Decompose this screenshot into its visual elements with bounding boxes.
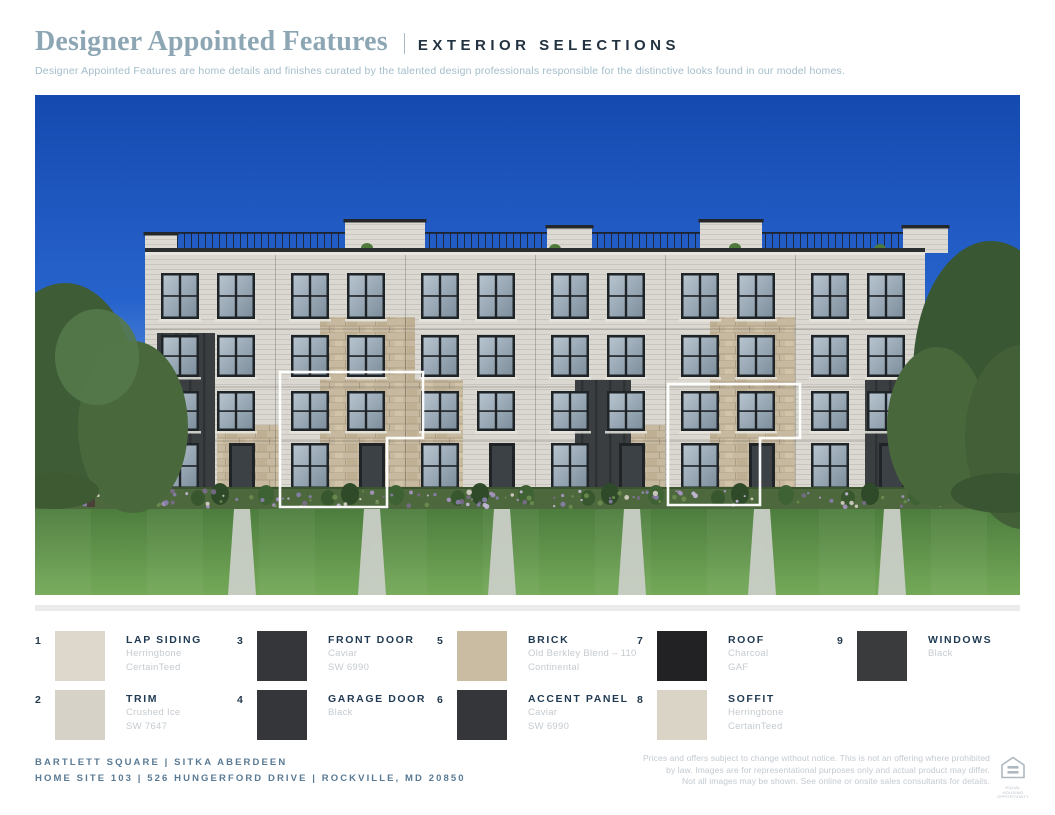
legend-detail: Caviar bbox=[528, 707, 629, 719]
legend-detail: SW 7647 bbox=[126, 721, 181, 733]
legend-detail: Old Berkley Blend – 110 bbox=[528, 648, 637, 660]
legend-column-1: 1 LAP SIDING Herringbone CertainTeed 2 T… bbox=[35, 631, 202, 749]
legend-number: 7 bbox=[637, 631, 657, 647]
soffit-swatch bbox=[657, 690, 707, 740]
legend-name: WINDOWS bbox=[928, 634, 992, 646]
legend-number: 5 bbox=[437, 631, 457, 647]
roof-swatch bbox=[657, 631, 707, 681]
legend-number: 2 bbox=[35, 690, 55, 706]
brochure-page: Designer Appointed Features EXTERIOR SEL… bbox=[0, 0, 1055, 815]
legend-name: LAP SIDING bbox=[126, 634, 202, 646]
townhome-rendering-svg bbox=[35, 95, 1020, 595]
legend-number: 8 bbox=[637, 690, 657, 706]
trim-swatch bbox=[55, 690, 105, 740]
garage-door-swatch bbox=[257, 690, 307, 740]
legend-detail: Continental bbox=[528, 662, 637, 674]
disclaimer-line: Not all images may be shown. See online … bbox=[643, 776, 990, 788]
disclaimer-line: Prices and offers subject to change with… bbox=[643, 753, 990, 765]
legend-number: 9 bbox=[837, 631, 857, 647]
legend-name: ACCENT PANEL bbox=[528, 693, 629, 705]
legend-name: SOFFIT bbox=[728, 693, 784, 705]
legend-column-5: 9 WINDOWS Black bbox=[837, 631, 992, 690]
selections-legend: 1 LAP SIDING Herringbone CertainTeed 2 T… bbox=[0, 631, 1055, 746]
disclaimer-line: by law. Images are for representational … bbox=[643, 765, 990, 777]
legend-detail: CertainTeed bbox=[728, 721, 784, 733]
legend-detail: CertainTeed bbox=[126, 662, 202, 674]
legal-disclaimer: Prices and offers subject to change with… bbox=[643, 753, 990, 788]
legend-name: ROOF bbox=[728, 634, 768, 646]
legend-column-4: 7 ROOF Charcoal GAF 8 SOFFIT Herringbone… bbox=[637, 631, 784, 749]
lap-siding-swatch bbox=[55, 631, 105, 681]
legend-item-roof: 7 ROOF Charcoal GAF bbox=[637, 631, 784, 681]
legend-item-brick: 5 BRICK Old Berkley Blend – 110 Continen… bbox=[437, 631, 637, 681]
legend-name: BRICK bbox=[528, 634, 637, 646]
legend-item-front-door: 3 FRONT DOOR Caviar SW 6990 bbox=[237, 631, 426, 681]
legend-name: GARAGE DOOR bbox=[328, 693, 426, 705]
legend-number: 4 bbox=[237, 690, 257, 706]
homesite-line: HOME SITE 103 | 526 HUNGERFORD DRIVE | R… bbox=[35, 773, 466, 784]
section-divider bbox=[35, 605, 1020, 611]
legend-item-garage-door: 4 GARAGE DOOR Black bbox=[237, 690, 426, 740]
legend-item-accent-panel: 6 ACCENT PANEL Caviar SW 6990 bbox=[437, 690, 637, 740]
legend-detail: Black bbox=[328, 707, 426, 719]
legend-name: TRIM bbox=[126, 693, 181, 705]
townhome-rendering bbox=[35, 95, 1020, 595]
title-separator bbox=[404, 33, 405, 54]
windows-swatch bbox=[857, 631, 907, 681]
brick-swatch bbox=[457, 631, 507, 681]
community-info: BARTLETT SQUARE | SITKA ABERDEEN HOME SI… bbox=[35, 757, 466, 789]
legend-item-lap-siding: 1 LAP SIDING Herringbone CertainTeed bbox=[35, 631, 202, 681]
title-row: Designer Appointed Features EXTERIOR SEL… bbox=[35, 28, 1020, 56]
legend-detail: Crushed Ice bbox=[126, 707, 181, 719]
header: Designer Appointed Features EXTERIOR SEL… bbox=[35, 28, 1020, 77]
legend-item-trim: 2 TRIM Crushed Ice SW 7647 bbox=[35, 690, 202, 740]
legend-detail: Herringbone bbox=[126, 648, 202, 660]
legend-number: 3 bbox=[237, 631, 257, 647]
page-description: Designer Appointed Features are home det… bbox=[35, 65, 1020, 77]
legend-detail: Black bbox=[928, 648, 992, 660]
legend-number: 6 bbox=[437, 690, 457, 706]
legend-column-3: 5 BRICK Old Berkley Blend – 110 Continen… bbox=[437, 631, 637, 749]
legend-name: FRONT DOOR bbox=[328, 634, 415, 646]
legend-detail: GAF bbox=[728, 662, 768, 674]
page-title: Designer Appointed Features bbox=[35, 28, 388, 56]
legend-detail: SW 6990 bbox=[528, 721, 629, 733]
equal-housing-logo: EQUAL HOUSING OPPORTUNITY bbox=[995, 756, 1031, 800]
accent-panel-swatch bbox=[457, 690, 507, 740]
front-door-swatch bbox=[257, 631, 307, 681]
community-line: BARTLETT SQUARE | SITKA ABERDEEN bbox=[35, 757, 466, 768]
legend-item-soffit: 8 SOFFIT Herringbone CertainTeed bbox=[637, 690, 784, 740]
building-facade bbox=[145, 255, 925, 500]
legend-detail: SW 6990 bbox=[328, 662, 415, 674]
legend-number: 1 bbox=[35, 631, 55, 647]
legend-column-2: 3 FRONT DOOR Caviar SW 6990 4 GARAGE DOO… bbox=[237, 631, 426, 749]
legend-item-windows: 9 WINDOWS Black bbox=[837, 631, 992, 681]
legend-detail: Herringbone bbox=[728, 707, 784, 719]
legend-detail: Charcoal bbox=[728, 648, 768, 660]
legend-detail: Caviar bbox=[328, 648, 415, 660]
equal-housing-icon bbox=[1000, 756, 1026, 780]
section-label: EXTERIOR SELECTIONS bbox=[418, 38, 680, 53]
equal-housing-label: EQUAL HOUSING OPPORTUNITY bbox=[995, 786, 1031, 800]
